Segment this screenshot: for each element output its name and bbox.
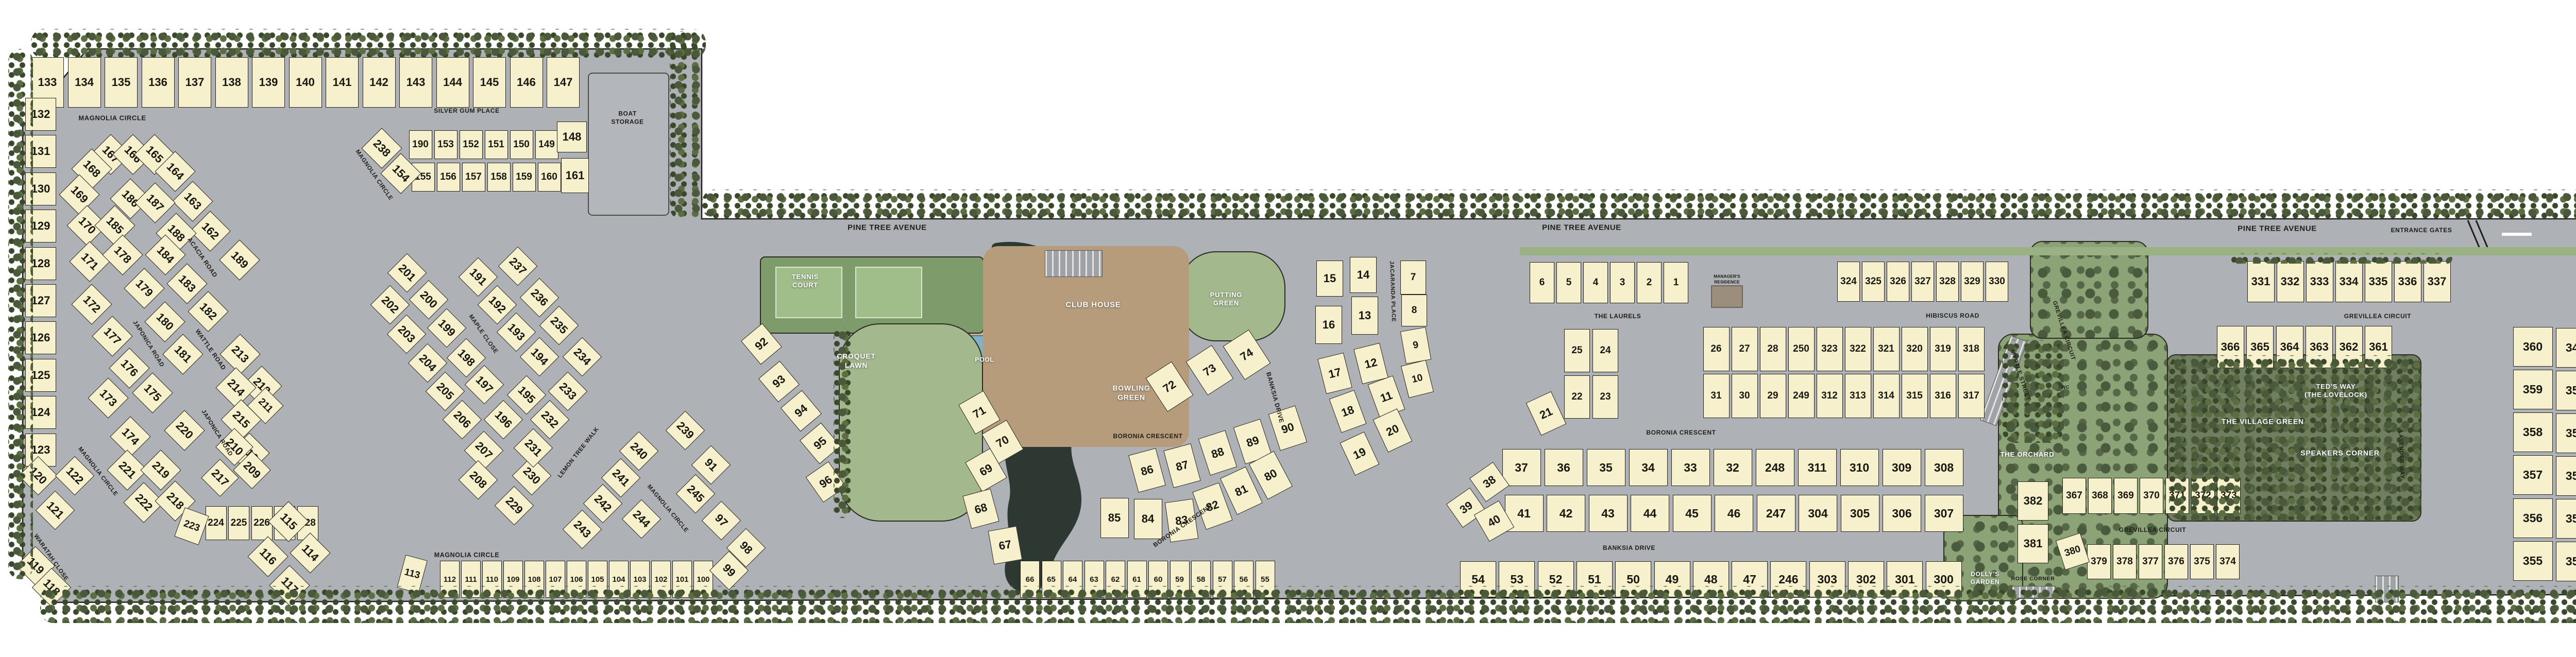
lot-305[interactable]: 305 xyxy=(1841,495,1879,532)
amenity-label: PUTTING GREEN xyxy=(1210,291,1243,308)
lot-247[interactable]: 247 xyxy=(1757,495,1795,532)
road-label: BORONIA CRESCENT xyxy=(1646,429,1716,436)
lot-67[interactable]: 67 xyxy=(988,526,1023,565)
lot-157[interactable]: 157 xyxy=(462,163,485,192)
road-label: MAGNOLIA CIRCLE xyxy=(78,114,146,122)
lot-144[interactable]: 144 xyxy=(436,57,469,108)
tree-border-8 xyxy=(2169,355,2421,520)
lot-382[interactable]: 382 xyxy=(2018,481,2048,521)
lot-136[interactable]: 136 xyxy=(142,57,175,108)
lot-26[interactable]: 26 xyxy=(1703,327,1730,371)
lot-35[interactable]: 35 xyxy=(1587,449,1625,486)
lot-322[interactable]: 322 xyxy=(1845,327,1871,371)
entry-label: BOAT STORAGE xyxy=(611,110,643,126)
lot-308[interactable]: 308 xyxy=(1925,449,1963,486)
lot-367[interactable]: 367 xyxy=(2062,478,2086,514)
lot-23[interactable]: 23 xyxy=(1592,375,1618,419)
lot-85[interactable]: 85 xyxy=(1100,498,1129,538)
lot-307[interactable]: 307 xyxy=(1925,495,1963,532)
lot-3[interactable]: 3 xyxy=(1610,262,1635,303)
lot-376[interactable]: 376 xyxy=(2164,544,2188,579)
lot-134[interactable]: 134 xyxy=(68,57,101,108)
lot-335[interactable]: 335 xyxy=(2365,261,2392,302)
lot-327[interactable]: 327 xyxy=(1911,262,1934,302)
lot-152[interactable]: 152 xyxy=(460,130,483,159)
lot-331[interactable]: 331 xyxy=(2247,261,2275,302)
lot-330[interactable]: 330 xyxy=(1986,262,2008,302)
lot-160[interactable]: 160 xyxy=(538,163,561,192)
lot-328[interactable]: 328 xyxy=(1936,262,1959,302)
lot-225[interactable]: 225 xyxy=(228,506,249,540)
lot-7[interactable]: 7 xyxy=(1400,261,1426,295)
lot-27[interactable]: 27 xyxy=(1732,327,1758,371)
tennis-court-2 xyxy=(855,267,922,318)
tree-border-6 xyxy=(2231,253,2452,264)
entry-label: ENTRANCE GATES xyxy=(2391,227,2452,235)
lot-6[interactable]: 6 xyxy=(1530,262,1554,303)
lot-22[interactable]: 22 xyxy=(1564,375,1590,419)
lot-325[interactable]: 325 xyxy=(1862,262,1885,302)
lot-159[interactable]: 159 xyxy=(513,163,536,192)
road-label: BANKSIA DRIVE xyxy=(1603,544,1655,551)
lot-351[interactable]: 351 xyxy=(2556,413,2576,453)
tree-border-3 xyxy=(670,31,702,220)
lot-156[interactable]: 156 xyxy=(437,163,460,192)
lot-45[interactable]: 45 xyxy=(1673,495,1711,532)
lot-250[interactable]: 250 xyxy=(1788,327,1815,371)
lot-370[interactable]: 370 xyxy=(2140,478,2163,514)
lot-141[interactable]: 141 xyxy=(326,57,359,108)
road-label: GREVILLEA CIRCUIT xyxy=(2119,526,2186,533)
tree-border-1 xyxy=(8,49,33,579)
amenity-label: TENNIS COURT xyxy=(792,273,819,290)
lot-310[interactable]: 310 xyxy=(1840,449,1879,486)
amenity-label: BOWLING GREEN xyxy=(1112,384,1150,402)
lot-350[interactable]: 350 xyxy=(2556,371,2576,410)
lot-5[interactable]: 5 xyxy=(1556,262,1581,303)
lot-16[interactable]: 16 xyxy=(1315,306,1342,344)
lot-33[interactable]: 33 xyxy=(1671,449,1710,486)
road-label: PINE TREE AVENUE xyxy=(1542,223,1621,232)
lot-147[interactable]: 147 xyxy=(547,57,580,108)
lot-84[interactable]: 84 xyxy=(1134,499,1162,539)
lot-25[interactable]: 25 xyxy=(1564,329,1590,372)
lot-381[interactable]: 381 xyxy=(2018,524,2048,563)
lot-320[interactable]: 320 xyxy=(1902,327,1928,371)
tree-border-2 xyxy=(40,586,2576,623)
small-label: MANAGER'S RESIDENCE xyxy=(1714,273,1740,284)
lot-248[interactable]: 248 xyxy=(1756,449,1794,486)
lot-316[interactable]: 316 xyxy=(1930,374,1956,418)
lot-313[interactable]: 313 xyxy=(1845,374,1871,418)
lot-249[interactable]: 249 xyxy=(1788,374,1815,418)
lot-150[interactable]: 150 xyxy=(510,130,533,159)
lot-304[interactable]: 304 xyxy=(1799,495,1837,532)
lot-332[interactable]: 332 xyxy=(2277,261,2304,302)
lot-13[interactable]: 13 xyxy=(1351,297,1378,335)
road-label: GREVILLEA CIRCUIT xyxy=(2344,313,2411,320)
lot-1[interactable]: 1 xyxy=(1664,262,1688,303)
road-label: MAGNOLIA CIRCLE xyxy=(434,551,500,559)
lot-30[interactable]: 30 xyxy=(1732,374,1758,418)
lot-149[interactable]: 149 xyxy=(535,130,558,159)
tree-border-4 xyxy=(702,189,2576,218)
lot-142[interactable]: 142 xyxy=(363,57,396,108)
lot-44[interactable]: 44 xyxy=(1631,495,1669,532)
lot-355[interactable]: 355 xyxy=(2513,541,2553,581)
lot-353[interactable]: 353 xyxy=(2556,499,2576,539)
lot-32[interactable]: 32 xyxy=(1714,449,1752,486)
lot-28[interactable]: 28 xyxy=(1760,327,1786,371)
masterplan-map: 1331341351361371381391401411421431441451… xyxy=(0,0,2576,657)
lot-378[interactable]: 378 xyxy=(2113,544,2137,579)
lot-2[interactable]: 2 xyxy=(1637,262,1662,303)
lot-318[interactable]: 318 xyxy=(1958,327,1985,371)
road-label: SILVER GUM PLACE xyxy=(434,107,499,114)
lot-135[interactable]: 135 xyxy=(105,57,138,108)
amenity-label: TED'S WAY (THE LOVELOCK) xyxy=(2304,383,2367,400)
lot-46[interactable]: 46 xyxy=(1715,495,1753,532)
lot-309[interactable]: 309 xyxy=(1883,449,1921,486)
lot-145[interactable]: 145 xyxy=(473,57,506,108)
amenity-label: THE VILLAGE GREEN xyxy=(2222,417,2304,426)
lot-146[interactable]: 146 xyxy=(510,57,543,108)
lot-356[interactable]: 356 xyxy=(2513,498,2553,538)
amenity-label: THE ORCHARD xyxy=(2001,451,2055,459)
amenity-label: DOLLY'S GARDEN xyxy=(1971,570,2000,586)
lot-143[interactable]: 143 xyxy=(399,57,432,108)
parking-area-0 xyxy=(1045,250,1103,277)
lot-368[interactable]: 368 xyxy=(2088,478,2112,514)
lot-312[interactable]: 312 xyxy=(1817,374,1843,418)
road-label: BORONIA CRESCENT xyxy=(1113,433,1182,440)
lot-357[interactable]: 357 xyxy=(2513,455,2553,495)
road-label: LEMON TREE WALK xyxy=(557,426,600,479)
lot-138[interactable]: 138 xyxy=(215,57,248,108)
lot-4[interactable]: 4 xyxy=(1583,262,1608,303)
lot-349[interactable]: 349 xyxy=(2556,328,2576,368)
lot-8[interactable]: 8 xyxy=(1401,295,1427,326)
lot-329[interactable]: 329 xyxy=(1961,262,1984,302)
lot-377[interactable]: 377 xyxy=(2139,544,2162,579)
road-label: JACARANDA PLACE xyxy=(1388,261,1397,322)
tree-border-0 xyxy=(31,29,706,59)
lot-153[interactable]: 153 xyxy=(434,130,457,159)
lot-333[interactable]: 333 xyxy=(2306,261,2333,302)
lot-354[interactable]: 354 xyxy=(2556,542,2576,581)
lot-337[interactable]: 337 xyxy=(2424,261,2451,302)
lot-315[interactable]: 315 xyxy=(1902,374,1928,418)
lot-15[interactable]: 15 xyxy=(1316,261,1343,297)
lot-158[interactable]: 158 xyxy=(487,163,511,192)
lot-36[interactable]: 36 xyxy=(1545,449,1583,486)
lot-336[interactable]: 336 xyxy=(2394,261,2421,302)
lot-151[interactable]: 151 xyxy=(485,130,508,159)
lot-352[interactable]: 352 xyxy=(2556,456,2576,496)
lot-324[interactable]: 324 xyxy=(1837,262,1860,302)
lot-31[interactable]: 31 xyxy=(1703,374,1730,418)
lot-43[interactable]: 43 xyxy=(1589,495,1628,532)
lot-139[interactable]: 139 xyxy=(252,57,285,108)
lot-137[interactable]: 137 xyxy=(178,57,211,108)
road-label: PINE TREE AVENUE xyxy=(848,223,927,232)
lot-311[interactable]: 311 xyxy=(1798,449,1837,486)
road-label: THE LAURELS xyxy=(1595,313,1641,320)
lot-323[interactable]: 323 xyxy=(1817,327,1843,371)
lot-358[interactable]: 358 xyxy=(2513,412,2553,452)
lot-375[interactable]: 375 xyxy=(2190,544,2214,579)
amenity-label: SPEAKERS CORNER xyxy=(2300,448,2380,458)
lot-148[interactable]: 148 xyxy=(557,122,587,152)
lot-29[interactable]: 29 xyxy=(1760,374,1786,418)
lot-334[interactable]: 334 xyxy=(2335,261,2363,302)
lot-369[interactable]: 369 xyxy=(2114,478,2138,514)
lot-374[interactable]: 374 xyxy=(2216,544,2240,579)
lot-226[interactable]: 226 xyxy=(251,506,273,540)
road-label: HIBISCUS ROAD xyxy=(1926,312,1979,319)
lot-24[interactable]: 24 xyxy=(1592,329,1618,372)
lot-190[interactable]: 190 xyxy=(409,130,432,159)
lot-314[interactable]: 314 xyxy=(1873,374,1900,418)
lot-317[interactable]: 317 xyxy=(1958,374,1985,418)
lot-9[interactable]: 9 xyxy=(1400,327,1431,364)
lot-42[interactable]: 42 xyxy=(1547,495,1585,532)
lot-360[interactable]: 360 xyxy=(2513,327,2553,367)
lot-319[interactable]: 319 xyxy=(1930,327,1956,371)
lot-379[interactable]: 379 xyxy=(2087,544,2111,579)
amenity-label: CLUB HOUSE xyxy=(1065,301,1121,310)
lot-224[interactable]: 224 xyxy=(206,506,227,540)
lot-359[interactable]: 359 xyxy=(2513,370,2553,409)
entry-label: WC xyxy=(2061,385,2070,391)
lot-34[interactable]: 34 xyxy=(1629,449,1668,486)
amenity-label: POOL xyxy=(975,356,994,364)
amenity-label: CROQUET LAWN xyxy=(837,352,876,370)
lot-140[interactable]: 140 xyxy=(289,57,322,108)
road-label: PINE TREE AVENUE xyxy=(2238,224,2317,233)
lot-321[interactable]: 321 xyxy=(1873,327,1900,371)
lot-37[interactable]: 37 xyxy=(1502,449,1541,486)
lot-306[interactable]: 306 xyxy=(1883,495,1921,532)
lot-161[interactable]: 161 xyxy=(561,158,589,193)
lot-14[interactable]: 14 xyxy=(1350,257,1377,293)
entry-label: ROSE CORNER xyxy=(2011,576,2055,583)
lot-326[interactable]: 326 xyxy=(1887,262,1909,302)
